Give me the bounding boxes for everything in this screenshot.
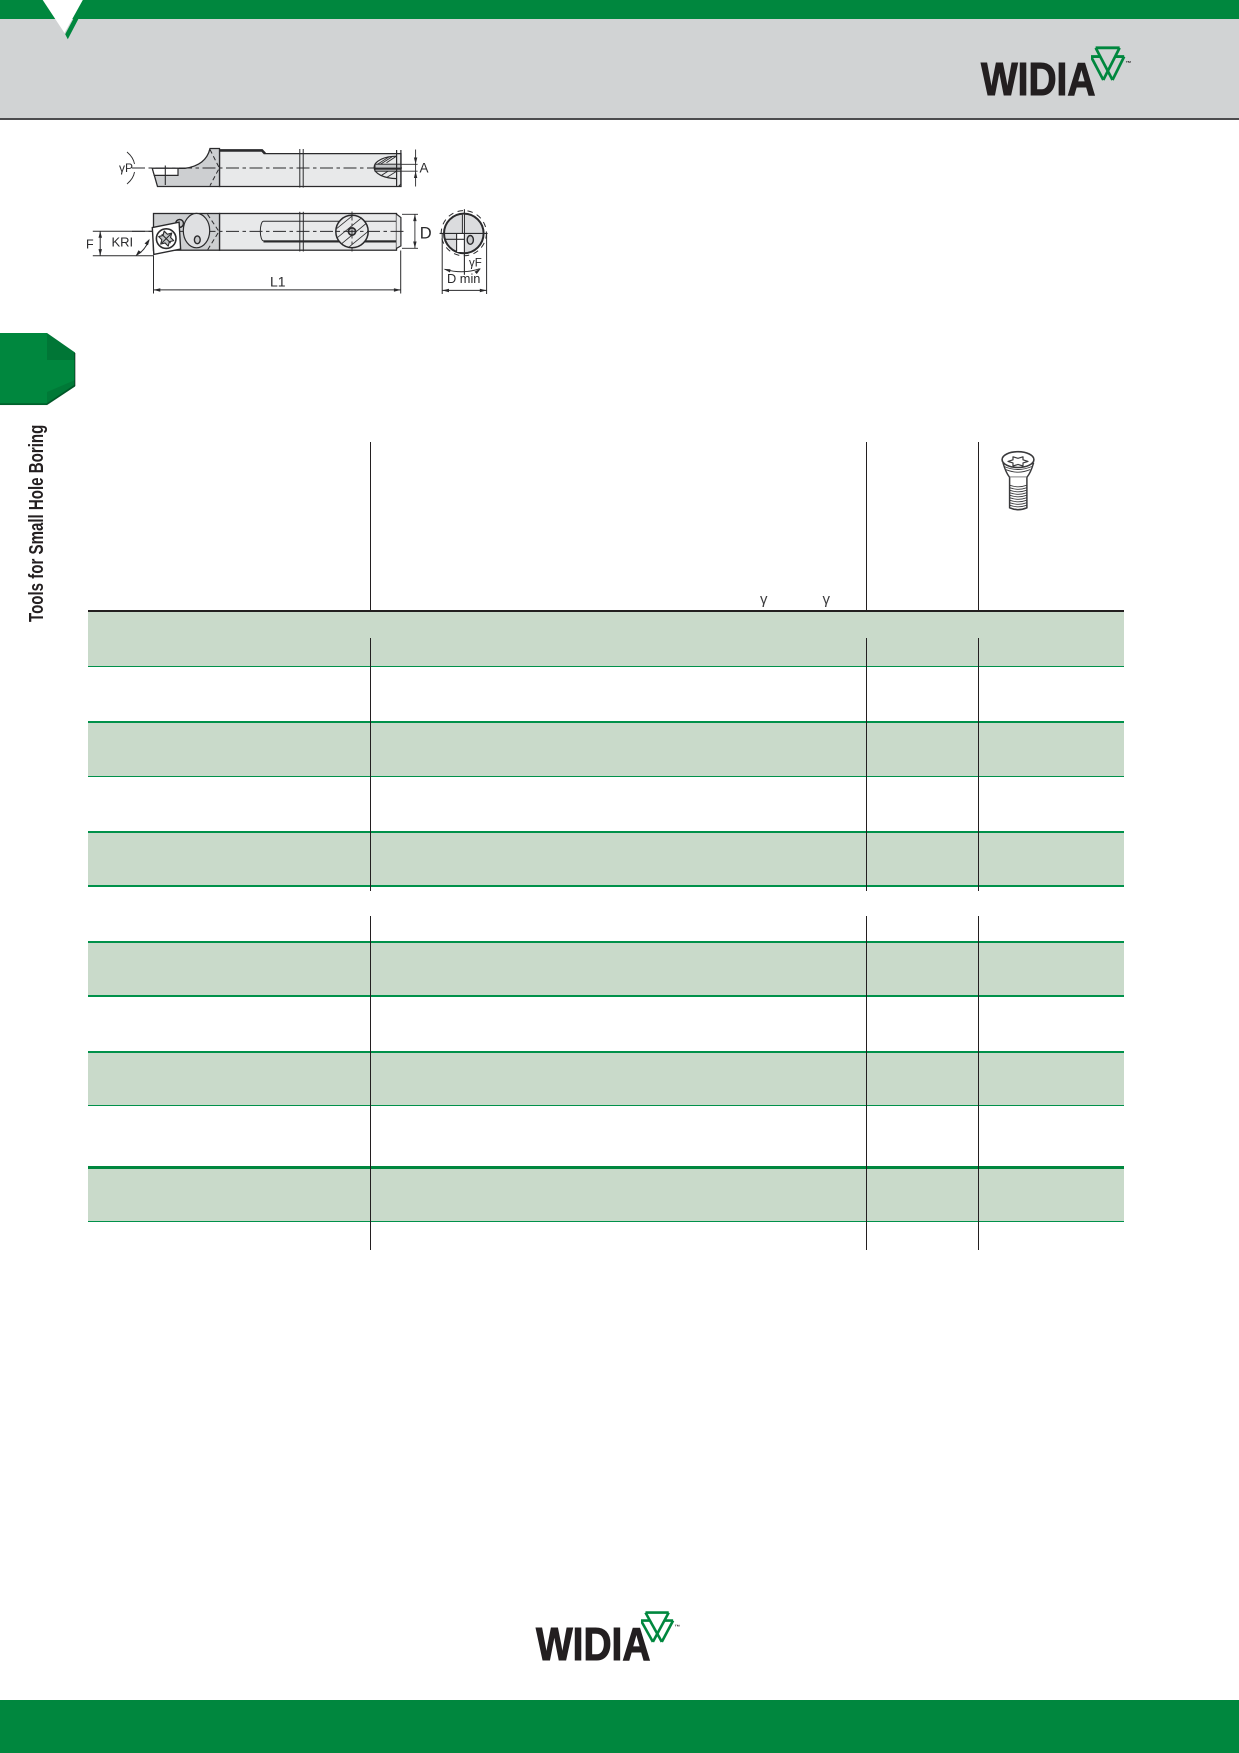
svg-text:™: ™	[1125, 60, 1131, 67]
svg-text:D: D	[420, 225, 432, 243]
svg-text:γF: γF	[469, 258, 482, 270]
svg-text:D min: D min	[447, 271, 480, 286]
svg-text:F: F	[86, 238, 94, 252]
svg-text:KRI: KRI	[112, 235, 134, 250]
svg-text:™: ™	[674, 1624, 680, 1630]
svg-text:L1: L1	[270, 274, 286, 290]
svg-text:γP: γP	[119, 161, 133, 175]
svg-text:A: A	[420, 161, 429, 176]
